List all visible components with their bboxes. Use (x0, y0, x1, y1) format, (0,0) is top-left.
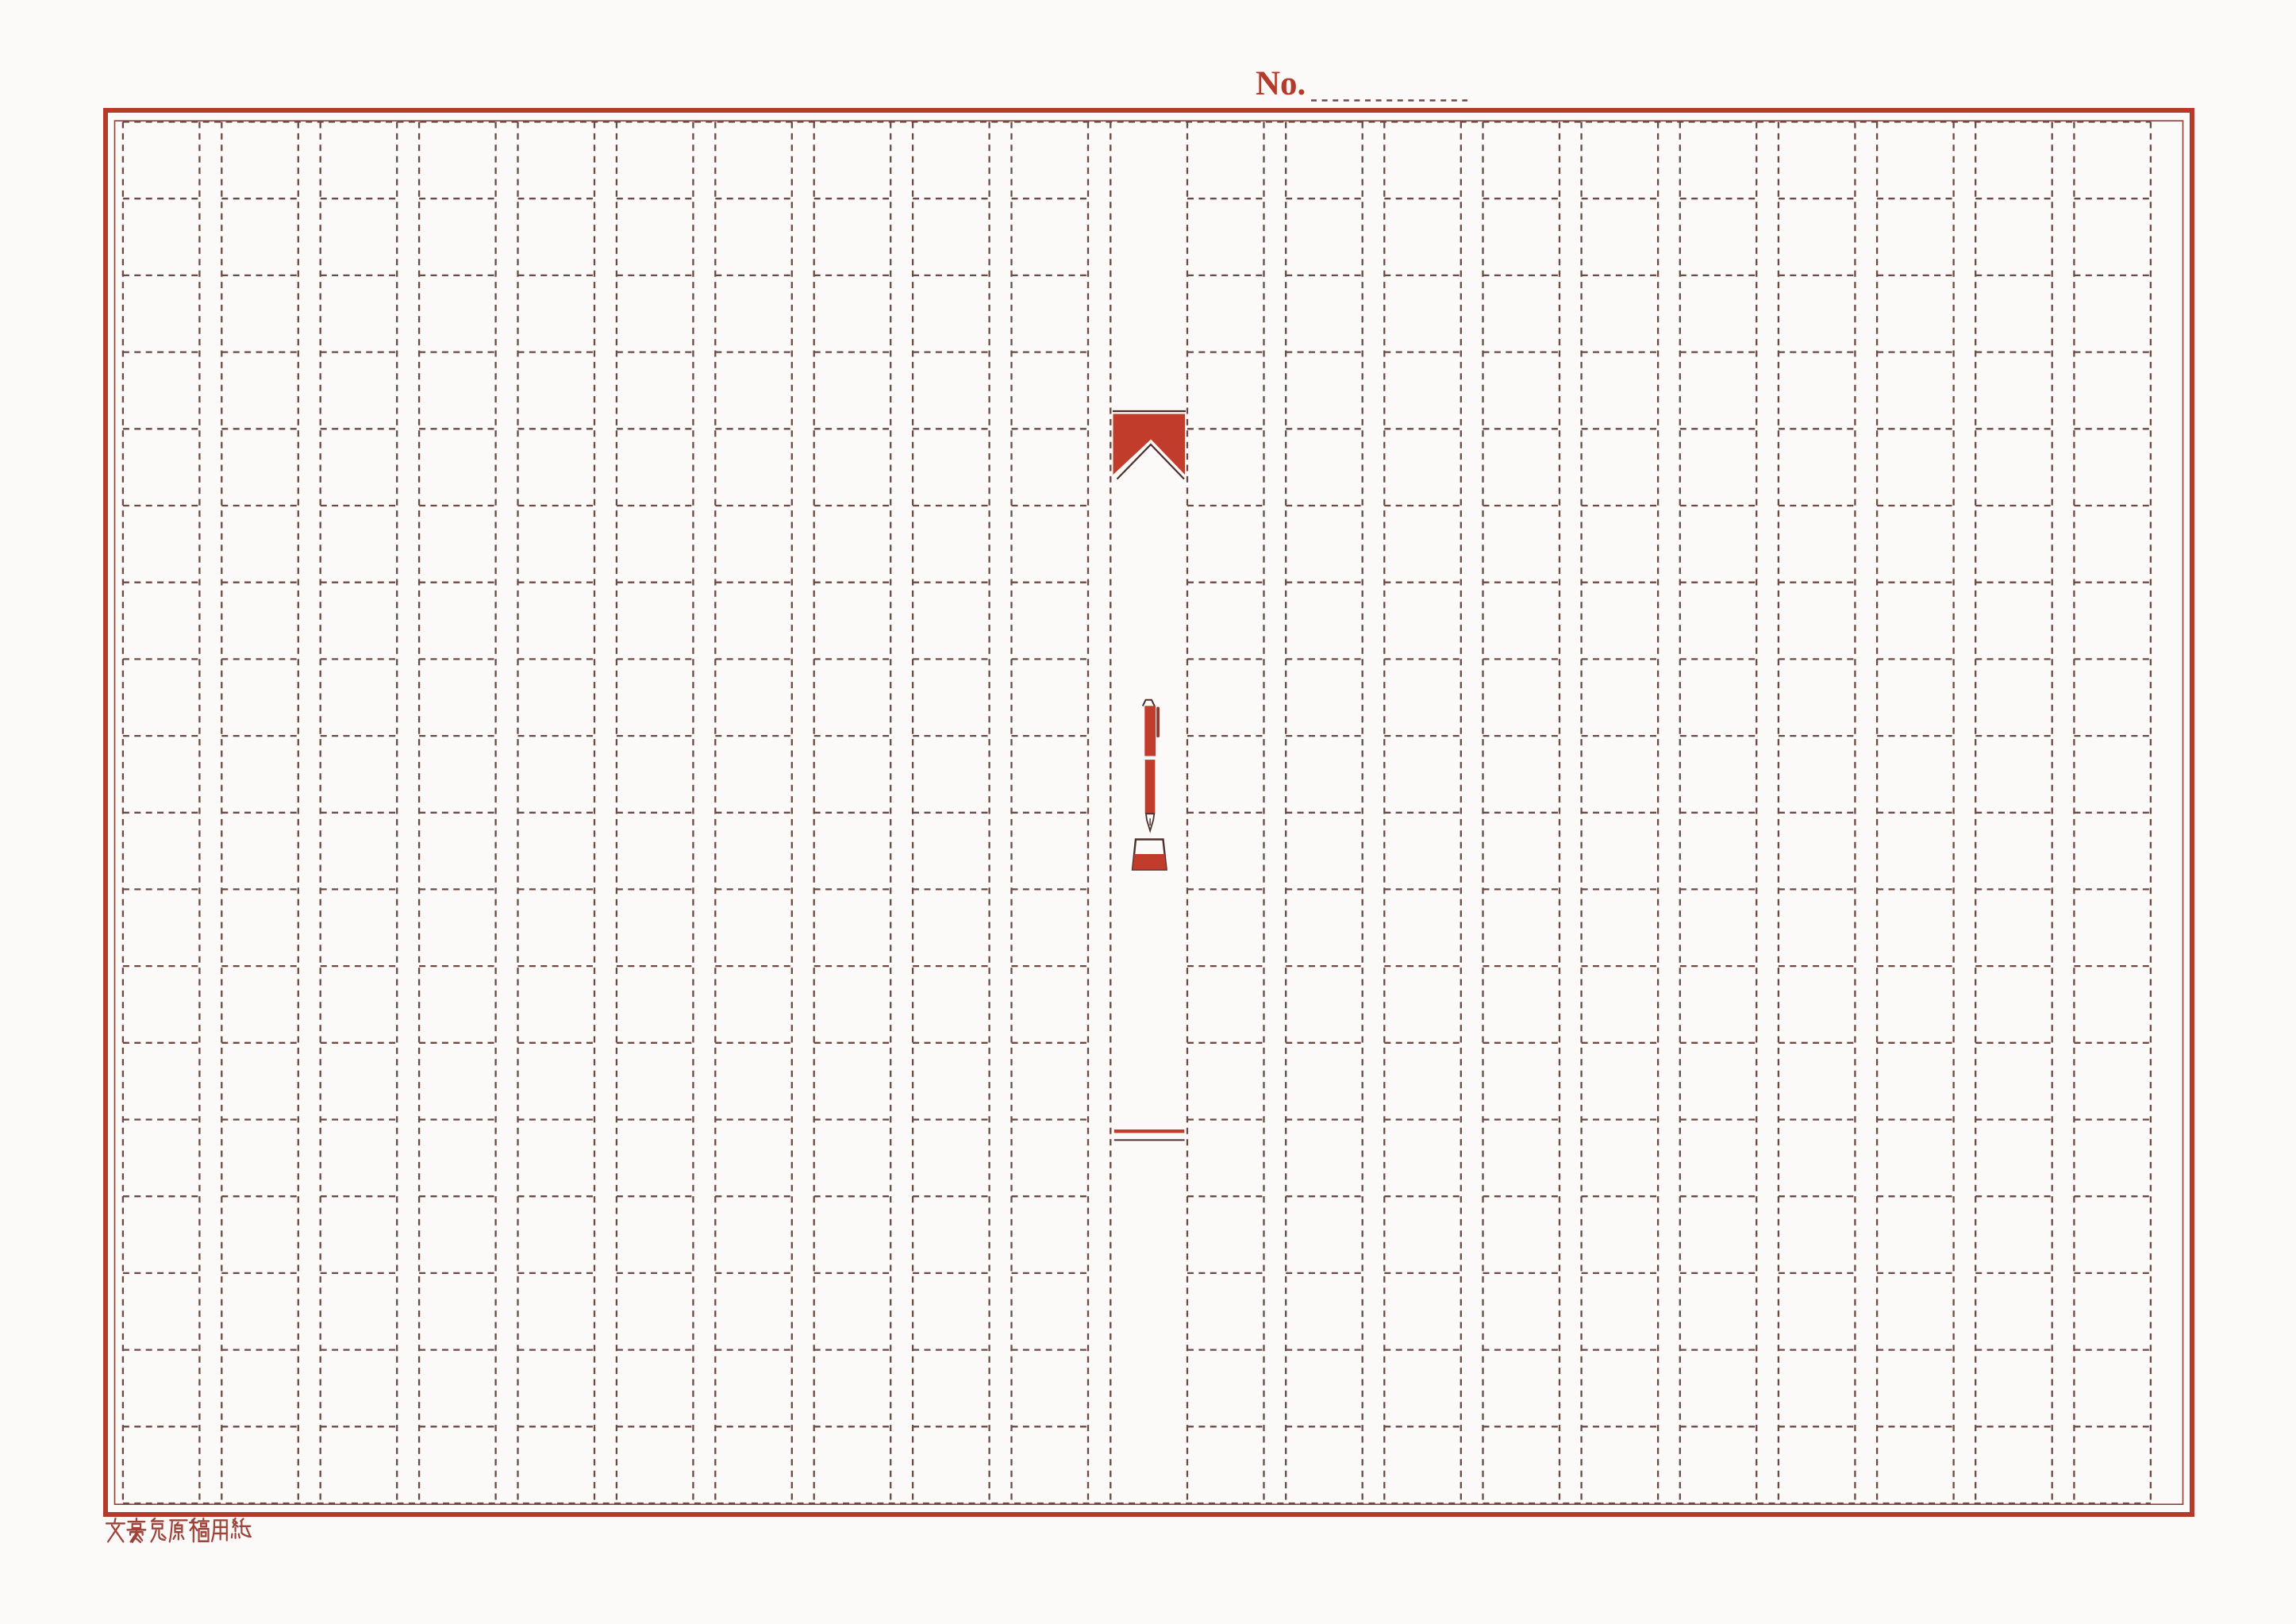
svg-text:No.: No. (1256, 65, 1306, 102)
